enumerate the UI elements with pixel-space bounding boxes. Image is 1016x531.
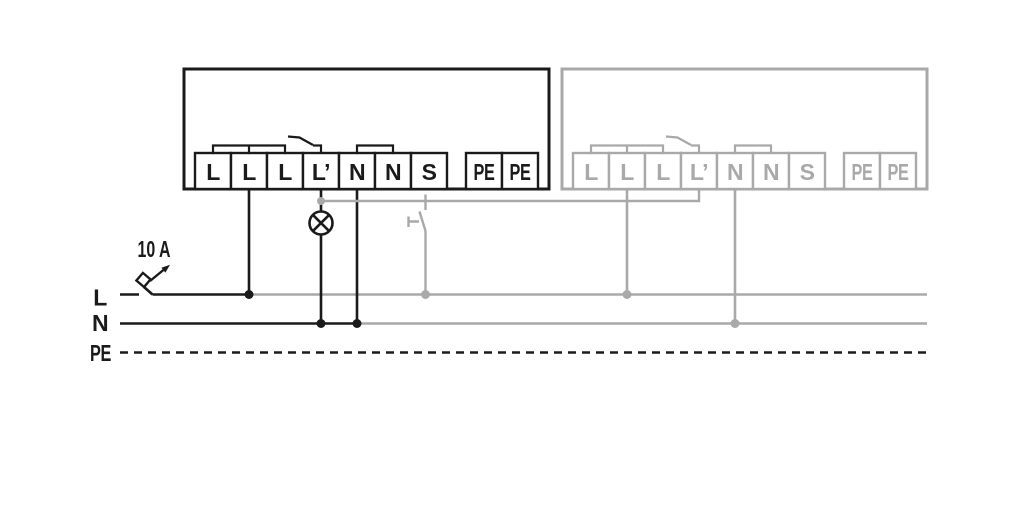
terminal-label: L [278,159,292,185]
active-wiring [245,189,362,328]
device-inactive: L L L L’ N N S PE PE [562,69,927,189]
diagram-canvas: L N PE 10 A L L L L’ N [0,0,1016,531]
terminal-label: L [242,159,256,185]
lamp-icon [310,212,333,235]
terminal-label: PE [888,159,909,185]
terminal-label: L [206,159,220,185]
circuit-breaker-icon: 10 A [136,236,170,295]
terminal-label: PE [510,159,531,185]
terminal-label: L [620,159,634,185]
inactive-wiring [317,189,740,328]
junction-dot [731,319,740,328]
junction-dot [353,319,362,328]
junction-dot [421,290,430,299]
push-button-actuator [409,217,420,228]
terminal-label: PE [852,159,873,185]
junction-dot [317,197,325,205]
device-active: L L L L’ N N S PE PE [184,69,549,189]
junction-dot [623,290,632,299]
terminal-label: S [800,159,815,185]
terminal-label: N [385,159,401,185]
breaker-arrow-shaft [150,270,164,282]
terminal-label: L [584,159,598,185]
pe-bus-label: PE [90,340,111,366]
wiring-diagram: L N PE 10 A L L L L’ N [0,0,1016,531]
bus-lines: L N PE [90,285,927,367]
n-bus-label: N [92,310,108,336]
junction-dot [245,290,254,299]
breaker-release-square [136,273,150,287]
push-button-icon [409,195,426,295]
breaker-blade [144,287,153,295]
terminal-label: N [349,159,365,185]
lamp-link-wire [321,189,699,201]
push-button-blade [420,212,426,232]
terminal-label: L’ [312,159,330,185]
terminal-label: L [656,159,670,185]
breaker-rating-label: 10 A [138,236,171,262]
l-bus-label: L [93,285,107,311]
terminal-label: N [763,159,779,185]
terminal-label: PE [474,159,495,185]
terminal-label: L’ [690,159,708,185]
terminal-label: N [727,159,743,185]
junction-dot [317,319,326,328]
terminal-label: S [422,159,437,185]
